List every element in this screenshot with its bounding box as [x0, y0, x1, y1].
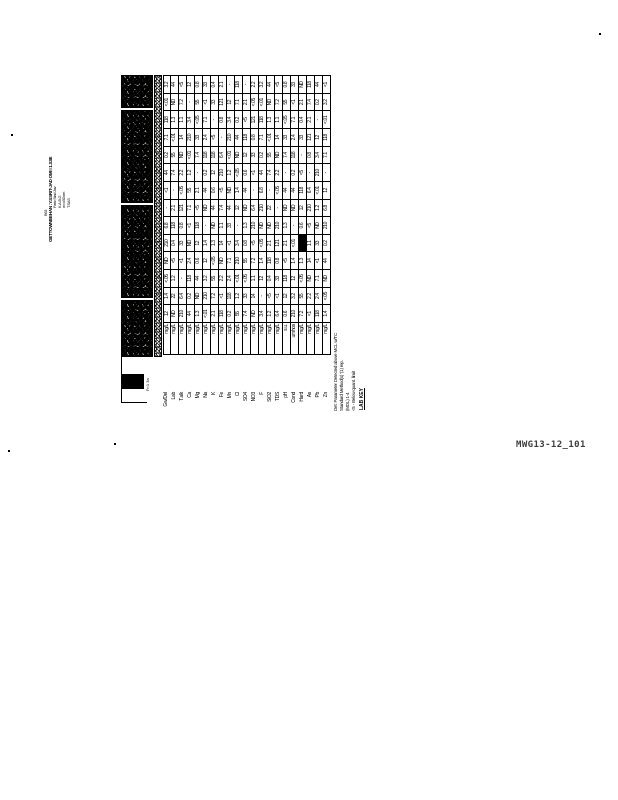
table-cell: 2.2	[219, 269, 227, 287]
table-cell: 7.4	[195, 146, 203, 164]
header-cell-note: Fr:1 3a	[146, 359, 150, 391]
table-cell: 7.1	[187, 199, 195, 217]
row-label: Pb	[315, 390, 323, 425]
row-label: F	[259, 390, 267, 425]
table-cell: 12	[283, 287, 291, 305]
table-cell: 12	[227, 93, 235, 111]
table-cell: ND	[227, 181, 235, 199]
table-cell: 118	[195, 216, 203, 234]
table-cell: 0.2	[259, 146, 267, 164]
table-cell: <.05	[323, 287, 331, 305]
table-cell: 1.2	[315, 199, 323, 217]
table-cell: 1.3	[267, 111, 275, 129]
table-cell: <1	[323, 75, 331, 93]
table-cell: 12	[259, 269, 267, 287]
table-cell: 12	[187, 75, 195, 93]
table-cell: 2.4	[203, 128, 211, 146]
table-cell: <1	[307, 304, 315, 322]
table-cell: 55	[243, 252, 251, 270]
table-cell: 0.6	[299, 216, 307, 234]
table-cell: <1	[187, 216, 195, 234]
table-cell: 0.6	[243, 163, 251, 181]
table-cell: 0.8	[243, 234, 251, 252]
table-cell: <5	[211, 128, 219, 146]
table-cell: -	[307, 163, 315, 181]
table-cell: <5	[267, 287, 275, 305]
row-label: Zn	[323, 390, 331, 425]
table-cell: ND	[299, 75, 307, 93]
row-unit: mg/L	[195, 322, 203, 355]
table-cell: 2.1	[299, 93, 307, 111]
table-cell: -	[163, 199, 171, 217]
table-cell: 0.2	[291, 163, 299, 181]
subheader-mark: 4	[155, 303, 161, 321]
table-cell: ND	[315, 216, 323, 234]
subheader-mark: 2	[155, 250, 161, 268]
table-cell: 7.4	[283, 146, 291, 164]
table-cell: <.01	[187, 146, 195, 164]
table-cell: 44	[235, 128, 243, 146]
table-cell: 7.1	[291, 111, 299, 129]
subheader-mark: 3	[155, 268, 161, 286]
table-cell: 210	[291, 304, 299, 322]
table-cell: ND	[267, 216, 275, 234]
row-unit: umhos	[291, 322, 299, 355]
row-gap	[235, 355, 243, 390]
row-gap	[203, 355, 211, 390]
table-cell: ND	[171, 93, 179, 111]
row-label: Lab	[171, 390, 179, 425]
table-cell: 55	[171, 146, 179, 164]
table-cell: ND	[171, 304, 179, 322]
table-cell: 0.2	[315, 93, 323, 111]
subheader-mark: 1	[155, 145, 161, 163]
table-cell: 7.1	[323, 146, 331, 164]
table-cell: 210	[275, 216, 283, 234]
table-cell: 3.4	[315, 146, 323, 164]
table-cell: -	[243, 75, 251, 93]
table-cell: 44	[267, 75, 275, 93]
table-cell: 3.4	[187, 111, 195, 129]
table-cell: 7.2	[299, 304, 307, 322]
table-cell: 7.4	[171, 163, 179, 181]
table-cell: 118	[315, 304, 323, 322]
table-cell: ND	[283, 199, 291, 217]
table-cell: -	[283, 163, 291, 181]
table-cell: 0.4	[211, 75, 219, 93]
table-cell: -	[275, 199, 283, 217]
header-segment	[121, 205, 153, 298]
table-cell: 1.4	[203, 234, 211, 252]
table-cell: ND	[235, 146, 243, 164]
table-cell: 1.3	[243, 216, 251, 234]
table-cell: 3.2	[163, 75, 171, 93]
table-cell: 2.1	[267, 234, 275, 252]
table-cell: -	[211, 111, 219, 129]
table-cell: ND	[307, 269, 315, 287]
caption-line: T.SAS	[67, 128, 72, 242]
table-cell: 12	[195, 234, 203, 252]
table-cell: 1.4	[163, 287, 171, 305]
table-cell: 7.1	[163, 128, 171, 146]
table-cell: 1.1	[219, 216, 227, 234]
table-cell: 14	[307, 252, 315, 270]
table-cell: <.01	[227, 146, 235, 164]
table-cell: 0.8	[275, 252, 283, 270]
table-cell: <1	[275, 287, 283, 305]
table-cell: 0.2	[187, 287, 195, 305]
row-label: TDS	[275, 390, 283, 425]
table-cell: 44	[195, 269, 203, 287]
row-label: Hard	[299, 390, 307, 425]
row-gap	[211, 355, 219, 390]
table-cell: <.05	[299, 269, 307, 287]
table-cell: 33	[315, 234, 323, 252]
table-cell: 6.4	[179, 287, 187, 305]
table-cell: 6.4	[307, 181, 315, 199]
scan-speck	[114, 443, 116, 445]
lab-key-label: LAB KEY	[359, 388, 365, 410]
table-cell: 3.2	[259, 75, 267, 93]
table-cell: -	[299, 146, 307, 164]
table-cell: 2.4	[291, 128, 299, 146]
table-cell: 33	[275, 269, 283, 287]
row-unit: mg/L	[315, 322, 323, 355]
table-cell: -	[323, 163, 331, 181]
table-cell: 1.2	[187, 163, 195, 181]
row-label: Cond	[291, 390, 299, 425]
row-label: Fe	[219, 390, 227, 425]
table-cell: ND	[179, 146, 187, 164]
table-cell: 3.2	[291, 287, 299, 305]
row-unit: mg/L	[243, 322, 251, 355]
table-cell: 1.3	[171, 111, 179, 129]
footnote-line: <5 - Below quant. limit	[351, 311, 357, 411]
table-cell: 118	[291, 146, 299, 164]
table-cell: 55	[211, 269, 219, 287]
table-cell: 55	[299, 287, 307, 305]
scanned-page: B63GETTOWNEEHAN :Y.SSRIT-JAD OMI I 1.S3E…	[0, 0, 618, 800]
table-cell: <1	[163, 181, 171, 199]
header-segment	[121, 110, 153, 203]
table-cell: 0.6	[195, 252, 203, 270]
table-cell: <.01	[171, 128, 179, 146]
table-cell: 3.2	[203, 269, 211, 287]
table-cell: 44	[211, 199, 219, 217]
table-cell: 1.2	[171, 269, 179, 287]
table-cell: 0.2	[227, 304, 235, 322]
row-gap	[179, 355, 187, 390]
table-cell: -	[179, 269, 187, 287]
table-cell: 6.4	[219, 146, 227, 164]
table-cell: 44	[163, 163, 171, 181]
table-cell: 6.4	[251, 199, 259, 217]
table-cell: <5	[283, 252, 291, 270]
table-cell: <.01	[291, 234, 299, 252]
table-cell: <5	[251, 234, 259, 252]
table-cell: 2.1	[171, 199, 179, 217]
table-cell: 210	[227, 128, 235, 146]
subheader-mark: 3	[155, 198, 161, 216]
table-cell: ND	[211, 216, 219, 234]
table-cell: 1.2	[235, 287, 243, 305]
table-cell: <.01	[315, 181, 323, 199]
table-cell: 44	[187, 304, 195, 322]
table-cell: 0.6	[283, 304, 291, 322]
row-unit: mg/L	[235, 322, 243, 355]
table-cell: 6.8	[259, 181, 267, 199]
figure-id-label: MWG13-12_101	[516, 440, 586, 450]
black-header-cell	[121, 374, 144, 389]
table-cell: 22	[267, 199, 275, 217]
table-cell: ND	[259, 216, 267, 234]
table-cell: 2.2	[179, 163, 187, 181]
subheader-mark: 4	[155, 180, 161, 198]
table-cell: 44	[227, 199, 235, 217]
row-gap	[187, 355, 195, 390]
table-cell: 7.1	[315, 269, 323, 287]
row-gap	[299, 355, 307, 390]
table-cell: 210	[219, 163, 227, 181]
row-label: K	[211, 390, 219, 425]
table-cell: 2.4	[227, 269, 235, 287]
row-label: Gw/Del	[163, 390, 171, 425]
table-cell: 2.4	[315, 287, 323, 305]
row-unit: mg/L	[171, 322, 179, 355]
table-cell: 7.1	[203, 111, 211, 129]
row-unit: mg/L	[299, 322, 307, 355]
table-cell: 121	[219, 93, 227, 111]
table-cell: 55	[195, 93, 203, 111]
row-label: pH	[283, 390, 291, 425]
subheader-mark: 2	[155, 162, 161, 180]
table-cell: 210	[203, 287, 211, 305]
table-cell: <5	[307, 216, 315, 234]
table-cell: 33	[251, 146, 259, 164]
table-cell: 0.2	[235, 111, 243, 129]
scan-speck	[11, 134, 13, 136]
table-cell: 33	[299, 128, 307, 146]
table-cell: 12	[203, 252, 211, 270]
table-cell: 7.4	[243, 304, 251, 322]
table-cell: 33	[283, 128, 291, 146]
table-cell: <.01	[163, 93, 171, 111]
table-cell: <.05	[243, 269, 251, 287]
table-cell: <5	[299, 163, 307, 181]
table-cell: 22	[171, 287, 179, 305]
table-cell: ND	[195, 287, 203, 305]
table-cell: <.05	[179, 181, 187, 199]
table-cell: 2.4	[187, 252, 195, 270]
table-cell: 210	[315, 163, 323, 181]
row-label: Na	[203, 390, 211, 425]
row-gap	[307, 355, 315, 390]
table-cell: <.05	[251, 93, 259, 111]
table-cell: 118	[171, 216, 179, 234]
table-cell: 33	[227, 216, 235, 234]
row-unit: mg/L	[179, 322, 187, 355]
table-cell: 44	[283, 181, 291, 199]
table-cell: 2.2	[251, 75, 259, 93]
table-cell: 7.4	[219, 199, 227, 217]
table-cell: -	[259, 287, 267, 305]
table-cell: ND	[291, 199, 299, 217]
table-cell: 33	[243, 287, 251, 305]
header-segment	[121, 75, 153, 108]
table-cell: 210	[251, 216, 259, 234]
table-cell: <5	[179, 75, 187, 93]
table-cell: <.05	[211, 252, 219, 270]
table-cell: -	[291, 216, 299, 234]
row-unit: mg/L	[203, 322, 211, 355]
table-cell: 1.4	[291, 252, 299, 270]
table-cell: <.01	[235, 269, 243, 287]
table-cell: ND	[203, 199, 211, 217]
table-cell: 14	[251, 287, 259, 305]
row-gap	[275, 355, 283, 390]
table-cell: -	[251, 181, 259, 199]
table-cell: 118	[203, 146, 211, 164]
table-cell: 1.2	[267, 304, 275, 322]
table-cell: 2.1	[243, 93, 251, 111]
table-cell: 12	[315, 128, 323, 146]
table-cell: ND	[251, 304, 259, 322]
table-cell: 0.4	[171, 234, 179, 252]
table-cell: 2.1	[307, 111, 315, 129]
table-cell: 118	[163, 111, 171, 129]
table-cell: -	[315, 111, 323, 129]
table-cell: 44	[259, 163, 267, 181]
table-cell: 44	[243, 181, 251, 199]
table-cell: 118	[227, 287, 235, 305]
subheader-mark: 3	[155, 127, 161, 145]
row-label: Cl	[235, 390, 243, 425]
table-cell: -	[203, 216, 211, 234]
footnotes: Det: Parameter Detected above MCL w/TCSt…	[333, 311, 357, 411]
table-cell: ND	[163, 252, 171, 270]
table-cell: 33	[211, 93, 219, 111]
table-cell: 6.4	[275, 304, 283, 322]
row-gap	[219, 355, 227, 390]
table-cell: 7.4	[267, 163, 275, 181]
table-cell: 1.3	[283, 216, 291, 234]
table-cell: -	[171, 181, 179, 199]
table-cell: 6.8	[323, 199, 331, 217]
table-cell: 1.3	[211, 234, 219, 252]
table-cell: <5	[219, 181, 227, 199]
table-cell: 118	[307, 75, 315, 93]
table-cell: 210	[179, 304, 187, 322]
table-cell: 1.4	[323, 304, 331, 322]
table-cell: 121	[251, 111, 259, 129]
row-label: Mn	[227, 390, 235, 425]
table-cell: 210	[259, 199, 267, 217]
table-cell: <1	[251, 163, 259, 181]
table-cell: 0.2	[323, 234, 331, 252]
table-cell: 7.2	[179, 93, 187, 111]
table-cell: 12	[235, 199, 243, 217]
table-cell: 1.4	[235, 181, 243, 199]
table-cell: 2.1	[219, 75, 227, 93]
row-gap	[259, 355, 267, 390]
table-cell: 14	[275, 128, 283, 146]
row-label: T.alk	[179, 390, 187, 425]
table-cell: <1	[219, 287, 227, 305]
subheader-mark: 4	[155, 233, 161, 251]
row-gap	[195, 355, 203, 390]
table-cell: 44	[171, 75, 179, 93]
row-unit: mg/L	[267, 322, 275, 355]
table-cell: 2.2	[275, 163, 283, 181]
subheader-mark: 3	[155, 338, 161, 356]
header-segment	[121, 300, 153, 357]
subheader-mark: 1	[155, 215, 161, 233]
table-cell: 2.1	[195, 181, 203, 199]
table-cell: 12	[211, 163, 219, 181]
table-cell: 12	[243, 146, 251, 164]
table-cell: -	[235, 216, 243, 234]
row-label: SO4	[243, 390, 251, 425]
subheader-mark: 1	[155, 286, 161, 304]
table-cell: 55	[235, 304, 243, 322]
table-cell: 44	[323, 252, 331, 270]
table-cell: 3.4	[259, 304, 267, 322]
table-cell: ND	[187, 234, 195, 252]
table-cell: 55	[283, 93, 291, 111]
table-cell: 121	[275, 234, 283, 252]
table-cell: 0.8	[283, 75, 291, 93]
table-cell: 44	[203, 181, 211, 199]
row-label: Mg	[195, 390, 203, 425]
table-cell: 6.8	[163, 216, 171, 234]
table-cell: 118	[323, 128, 331, 146]
table-cell: 7.1	[227, 252, 235, 270]
table-cell: 0.8	[307, 146, 315, 164]
subheader-mark: 2	[155, 110, 161, 128]
row-gap	[163, 355, 171, 390]
row-gap	[283, 355, 291, 390]
table-cell: 0.8	[251, 128, 259, 146]
table-cell: 33	[179, 234, 187, 252]
table-cell: 210	[307, 199, 315, 217]
page-caption: B63GETTOWNEEHAN :Y.SSRIT-JAD OMI I 1.S3E…	[44, 128, 72, 242]
table-cell: ND	[243, 199, 251, 217]
subheader-row: 31413241342132	[154, 75, 162, 357]
row-unit: mg/L	[219, 322, 227, 355]
table-cell: 0.4	[267, 269, 275, 287]
table-cell: 210	[235, 252, 243, 270]
row-unit: s.u.	[283, 322, 291, 355]
table-cell: 0.2	[163, 146, 171, 164]
row-gap	[323, 355, 331, 390]
table-cell: 33	[291, 75, 299, 93]
row-unit: mg/L	[275, 322, 283, 355]
scan-speck	[599, 33, 601, 35]
table-cell: 7.2	[275, 93, 283, 111]
row-gap	[243, 355, 251, 390]
table-cell: ND	[267, 93, 275, 111]
table-cell: 7.2	[211, 287, 219, 305]
row-unit: mg/L	[307, 322, 315, 355]
table-cell: 44	[315, 75, 323, 93]
table-cell: 44	[291, 181, 299, 199]
table-cell: 1.1	[251, 269, 259, 287]
table-cell: <1	[227, 234, 235, 252]
row-gap	[315, 355, 323, 390]
row-unit: mg/L	[323, 322, 331, 355]
table-cell: 12	[299, 199, 307, 217]
table-cell: <1	[291, 93, 299, 111]
